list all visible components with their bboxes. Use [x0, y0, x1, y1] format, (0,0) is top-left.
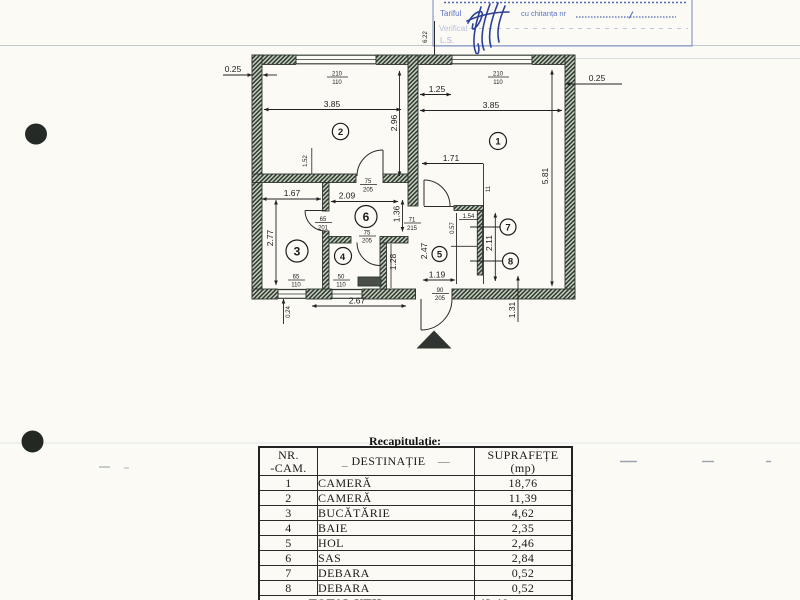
- svg-text:0.24: 0.24: [286, 306, 292, 318]
- svg-text:1.36: 1.36: [392, 205, 402, 222]
- svg-text:3.85: 3.85: [324, 99, 341, 109]
- svg-text:1.19: 1.19: [429, 270, 446, 280]
- svg-text:2.77: 2.77: [265, 229, 275, 246]
- svg-text:0.25: 0.25: [225, 64, 242, 74]
- svg-text:205: 205: [435, 296, 446, 302]
- svg-text:1: 1: [495, 137, 501, 148]
- svg-text:2.96: 2.96: [389, 114, 399, 131]
- svg-text:cu chitanța nr: cu chitanța nr: [521, 9, 567, 18]
- svg-text:6.22: 6.22: [423, 31, 429, 43]
- svg-text:11: 11: [486, 185, 492, 192]
- svg-text:205: 205: [363, 188, 374, 194]
- svg-text:2.67: 2.67: [349, 296, 366, 306]
- svg-text:2.47: 2.47: [419, 242, 429, 259]
- svg-text:Tariful: Tariful: [440, 9, 462, 18]
- svg-text:110: 110: [336, 283, 346, 289]
- svg-text:1.52: 1.52: [303, 155, 309, 167]
- svg-text:0.57: 0.57: [450, 222, 456, 234]
- svg-text:4: 4: [340, 252, 346, 263]
- svg-text:1.31: 1.31: [507, 301, 517, 318]
- svg-text:3.85: 3.85: [483, 100, 500, 110]
- svg-text:1.28: 1.28: [388, 253, 398, 270]
- svg-text:2.09: 2.09: [339, 191, 356, 201]
- svg-text:5: 5: [437, 250, 443, 261]
- svg-text:L.S.: L.S.: [440, 36, 454, 45]
- svg-text:205: 205: [362, 239, 373, 245]
- svg-text:1.67: 1.67: [284, 188, 301, 198]
- svg-text:110: 110: [332, 80, 342, 86]
- svg-text:5.81: 5.81: [540, 167, 550, 184]
- svg-text:1.25: 1.25: [429, 84, 446, 94]
- svg-text:201: 201: [318, 226, 329, 232]
- svg-text:6: 6: [363, 210, 370, 224]
- svg-text:8: 8: [508, 257, 513, 268]
- svg-text:110: 110: [493, 80, 503, 86]
- svg-text:110: 110: [291, 283, 301, 289]
- svg-text:7: 7: [505, 223, 510, 234]
- svg-text:3: 3: [294, 245, 301, 259]
- svg-text:Verificat: Verificat: [439, 24, 468, 33]
- svg-text:2.11: 2.11: [484, 235, 494, 251]
- svg-text:215: 215: [407, 226, 418, 232]
- svg-text:0.25: 0.25: [589, 73, 606, 83]
- svg-text:1.71: 1.71: [443, 153, 460, 163]
- svg-text:2: 2: [338, 127, 343, 138]
